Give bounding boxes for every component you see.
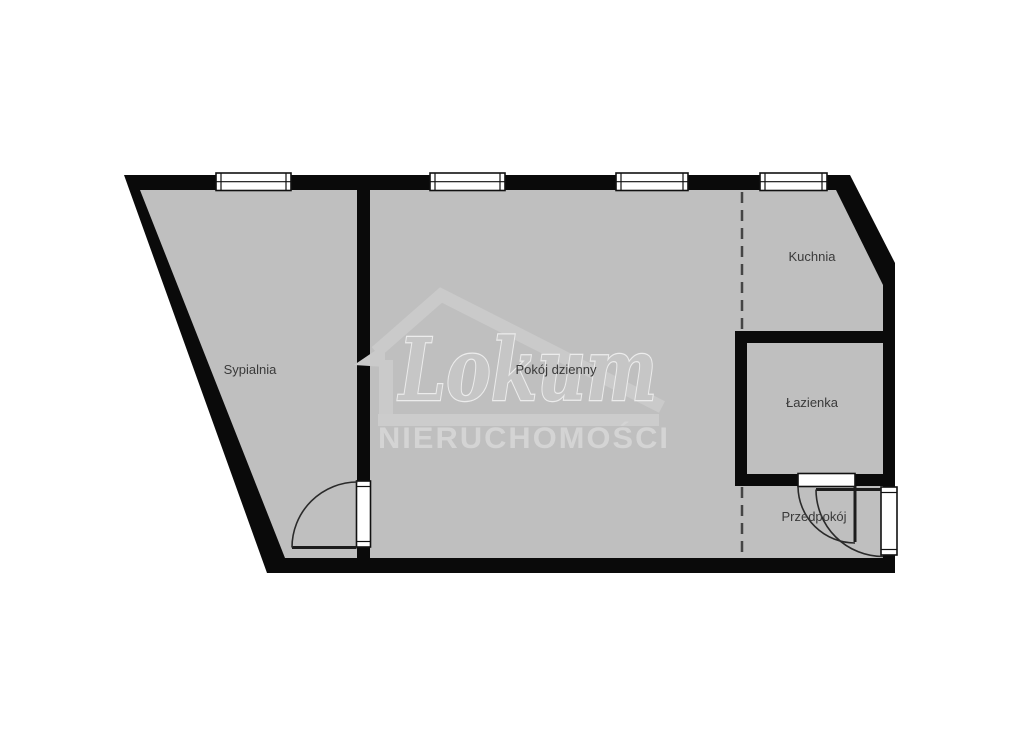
- room-label-pokoj-dzienny: Pokój dzienny: [516, 362, 597, 377]
- watermark-subtitle: NIERUCHOMOŚCI: [378, 421, 670, 455]
- floorplan-canvas: Lokum NIERUCHOMOŚCI Sypialnia Pokój dzie…: [0, 0, 1024, 750]
- room-label-kuchnia: Kuchnia: [789, 249, 837, 264]
- window-bedroom-icon: [216, 173, 291, 191]
- house-wall-icon: [379, 360, 393, 416]
- window-living-2-icon: [616, 173, 688, 191]
- wall-bathroom-bottom-left: [735, 474, 798, 486]
- window-living-1-icon: [430, 173, 505, 191]
- room-label-przedpokoj: Przedpokój: [781, 509, 846, 524]
- room-label-sypialnia: Sypialnia: [224, 362, 278, 377]
- wall-bathroom-left: [735, 331, 747, 486]
- room-label-lazienka: Łazienka: [786, 395, 839, 410]
- floorplan-page: Lokum NIERUCHOMOŚCI Sypialnia Pokój dzie…: [0, 0, 1024, 750]
- wall-bedroom-living: [357, 189, 370, 482]
- wall-bathroom-bottom-right: [855, 474, 883, 486]
- wall-kitchen-bathroom: [735, 331, 883, 343]
- wall-bedroom-living-stub: [357, 547, 370, 559]
- window-kitchen-icon: [760, 173, 827, 191]
